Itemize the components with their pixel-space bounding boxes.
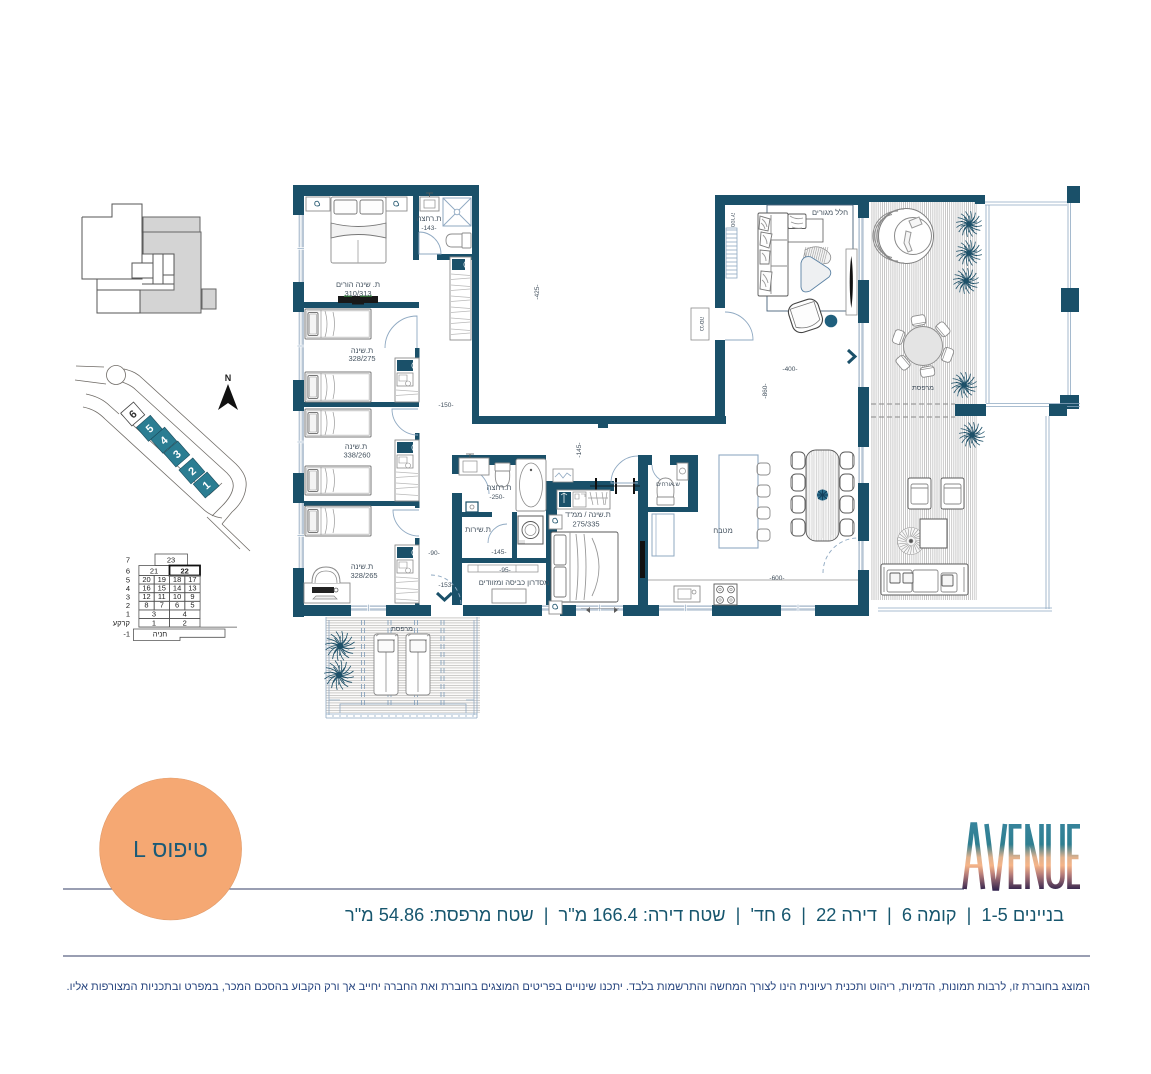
- svg-text:7: 7: [160, 601, 164, 610]
- svg-text:-95-: -95-: [499, 567, 511, 574]
- svg-text:-145-: -145-: [576, 442, 583, 457]
- svg-text:ת.שינה: ת.שינה: [351, 562, 373, 571]
- svg-text:2: 2: [183, 618, 187, 627]
- svg-text:310/313: 310/313: [344, 289, 371, 298]
- svg-text:חלל מגורים: חלל מגורים: [812, 208, 848, 217]
- svg-text:-250-: -250-: [489, 494, 504, 501]
- svg-text:6: 6: [126, 567, 130, 576]
- svg-text:23: 23: [167, 556, 175, 565]
- svg-text:ת.רחצה: ת.רחצה: [487, 483, 512, 492]
- svg-text:-400-: -400-: [782, 366, 797, 373]
- svg-text:328/275: 328/275: [348, 354, 375, 363]
- svg-text:7: 7: [126, 556, 130, 565]
- svg-text:275/335: 275/335: [572, 520, 599, 529]
- svg-text:-425-: -425-: [534, 284, 541, 299]
- svg-text:חניה: חניה: [153, 630, 167, 639]
- svg-text:-150-: -150-: [438, 402, 453, 409]
- svg-text:338/260: 338/260: [343, 451, 370, 460]
- svg-text:ת.שינה / ממ"ד: ת.שינה / ממ"ד: [565, 510, 611, 519]
- svg-text:מרפסת: מרפסת: [912, 385, 934, 392]
- svg-text:ת.שירות: ת.שירות: [465, 525, 491, 534]
- svg-text:5: 5: [190, 601, 194, 610]
- svg-text:2: 2: [126, 601, 130, 610]
- svg-text:-600-: -600-: [769, 575, 784, 582]
- svg-text:מטבח: מטבח: [713, 526, 732, 535]
- svg-text:מסדרון כביסה ומזוודים: מסדרון כביסה ומזוודים: [479, 578, 550, 587]
- svg-text:ת.רחצה: ת.רחצה: [417, 214, 442, 223]
- svg-text:-1: -1: [123, 630, 130, 639]
- svg-text:N: N: [225, 373, 232, 383]
- svg-text:קרקע: קרקע: [113, 618, 131, 627]
- svg-text:ש.אורחים: ש.אורחים: [656, 482, 680, 488]
- svg-text:6: 6: [175, 601, 179, 610]
- svg-text:328/265: 328/265: [350, 571, 377, 580]
- svg-text:8: 8: [144, 601, 148, 610]
- svg-text:ספריה: ספריה: [729, 213, 735, 228]
- svg-text:כניסה: כניסה: [698, 317, 704, 332]
- svg-text:1: 1: [152, 618, 156, 627]
- svg-text:ת. שינה הורים: ת. שינה הורים: [336, 280, 380, 289]
- svg-text:מרפסת: מרפסת: [391, 626, 413, 633]
- svg-text:-143-: -143-: [421, 225, 436, 232]
- svg-text:-153-: -153-: [438, 582, 453, 589]
- svg-text:-145-: -145-: [491, 549, 506, 556]
- svg-text:-860-: -860-: [762, 383, 769, 398]
- svg-text:-90-: -90-: [428, 550, 440, 557]
